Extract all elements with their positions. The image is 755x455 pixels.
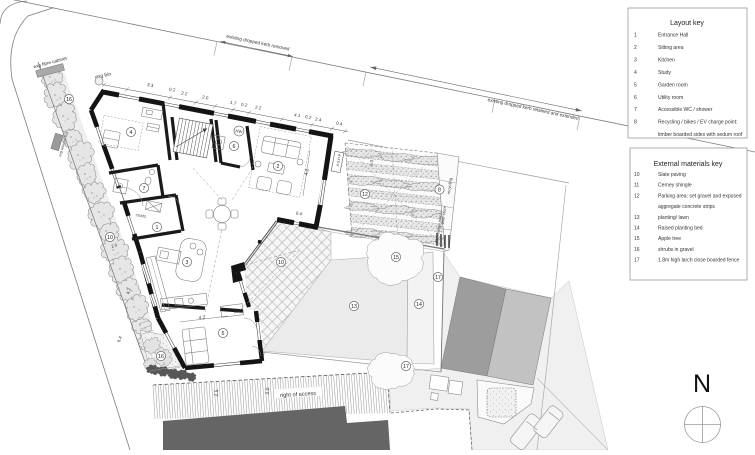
svg-text:6: 6 bbox=[634, 95, 637, 101]
svg-text:Garden room: Garden room bbox=[658, 82, 688, 88]
svg-text:11: 11 bbox=[634, 183, 639, 189]
svg-text:aggregate concrete strips: aggregate concrete strips bbox=[658, 204, 715, 210]
svg-text:16: 16 bbox=[66, 97, 72, 103]
svg-text:17: 17 bbox=[634, 258, 640, 264]
svg-text:14: 14 bbox=[634, 226, 640, 232]
svg-text:2: 2 bbox=[277, 164, 280, 170]
svg-text:Accessible WC / shower: Accessible WC / shower bbox=[658, 107, 713, 113]
svg-text:Recycling / bikes / EV charge: Recycling / bikes / EV charge point: bbox=[658, 120, 737, 126]
svg-text:shrubs in gravel: shrubs in gravel bbox=[658, 247, 694, 253]
svg-text:10: 10 bbox=[107, 235, 113, 241]
svg-text:4.2: 4.2 bbox=[198, 315, 206, 322]
svg-text:N: N bbox=[693, 370, 711, 398]
svg-text:planting/ lawn: planting/ lawn bbox=[658, 215, 689, 221]
svg-text:3: 3 bbox=[186, 260, 189, 266]
svg-text:10: 10 bbox=[634, 172, 640, 178]
svg-text:timber boarded sides with sed: timber boarded sides with sedum roof bbox=[658, 132, 743, 138]
svg-text:12: 12 bbox=[362, 192, 368, 198]
svg-text:Sitting area: Sitting area bbox=[658, 45, 684, 51]
svg-text:10: 10 bbox=[278, 260, 284, 266]
svg-text:Cerney shingle: Cerney shingle bbox=[658, 183, 692, 189]
svg-text:4: 4 bbox=[130, 130, 133, 136]
svg-text:1: 1 bbox=[156, 225, 159, 231]
svg-text:13: 13 bbox=[634, 215, 640, 221]
svg-text:2.0: 2.0 bbox=[369, 159, 375, 166]
svg-text:Study: Study bbox=[658, 70, 671, 76]
svg-text:5: 5 bbox=[222, 331, 225, 337]
svg-text:Layout key: Layout key bbox=[670, 20, 704, 27]
svg-text:7: 7 bbox=[143, 186, 146, 192]
svg-text:7: 7 bbox=[634, 107, 637, 113]
svg-text:Apple tree: Apple tree bbox=[658, 236, 681, 242]
svg-text:0.4: 0.4 bbox=[234, 309, 241, 315]
svg-text:2: 2 bbox=[634, 45, 637, 51]
svg-text:1.8m high larch close boarded: 1.8m high larch close boarded fence bbox=[658, 258, 740, 264]
svg-text:8: 8 bbox=[634, 120, 637, 126]
svg-text:17: 17 bbox=[403, 364, 409, 370]
svg-text:6: 6 bbox=[233, 144, 236, 150]
svg-text:Parking area: set gravel and e: Parking area: set gravel and exposed bbox=[658, 193, 742, 199]
svg-text:4: 4 bbox=[634, 70, 637, 76]
svg-text:16: 16 bbox=[634, 247, 640, 253]
svg-text:Kitchen: Kitchen bbox=[658, 57, 675, 63]
svg-text:Raised planting bed: Raised planting bed bbox=[658, 226, 703, 232]
svg-text:External materials key: External materials key bbox=[654, 161, 723, 168]
svg-text:16: 16 bbox=[158, 354, 164, 360]
svg-text:Slate paving: Slate paving bbox=[658, 172, 686, 178]
svg-text:3: 3 bbox=[634, 57, 637, 63]
svg-text:2.5: 2.5 bbox=[214, 389, 220, 396]
svg-text:Entrance Hall: Entrance Hall bbox=[658, 33, 688, 39]
svg-text:15: 15 bbox=[393, 255, 399, 261]
svg-text:5: 5 bbox=[634, 82, 637, 88]
svg-text:8: 8 bbox=[438, 187, 441, 193]
svg-text:13: 13 bbox=[351, 304, 357, 310]
svg-text:14: 14 bbox=[416, 302, 422, 308]
svg-text:12: 12 bbox=[634, 193, 640, 199]
svg-text:17: 17 bbox=[435, 275, 441, 281]
svg-text:2.0: 2.0 bbox=[265, 387, 271, 394]
svg-text:1: 1 bbox=[634, 33, 637, 39]
svg-text:15: 15 bbox=[634, 236, 640, 242]
svg-text:Utility room: Utility room bbox=[658, 95, 683, 101]
